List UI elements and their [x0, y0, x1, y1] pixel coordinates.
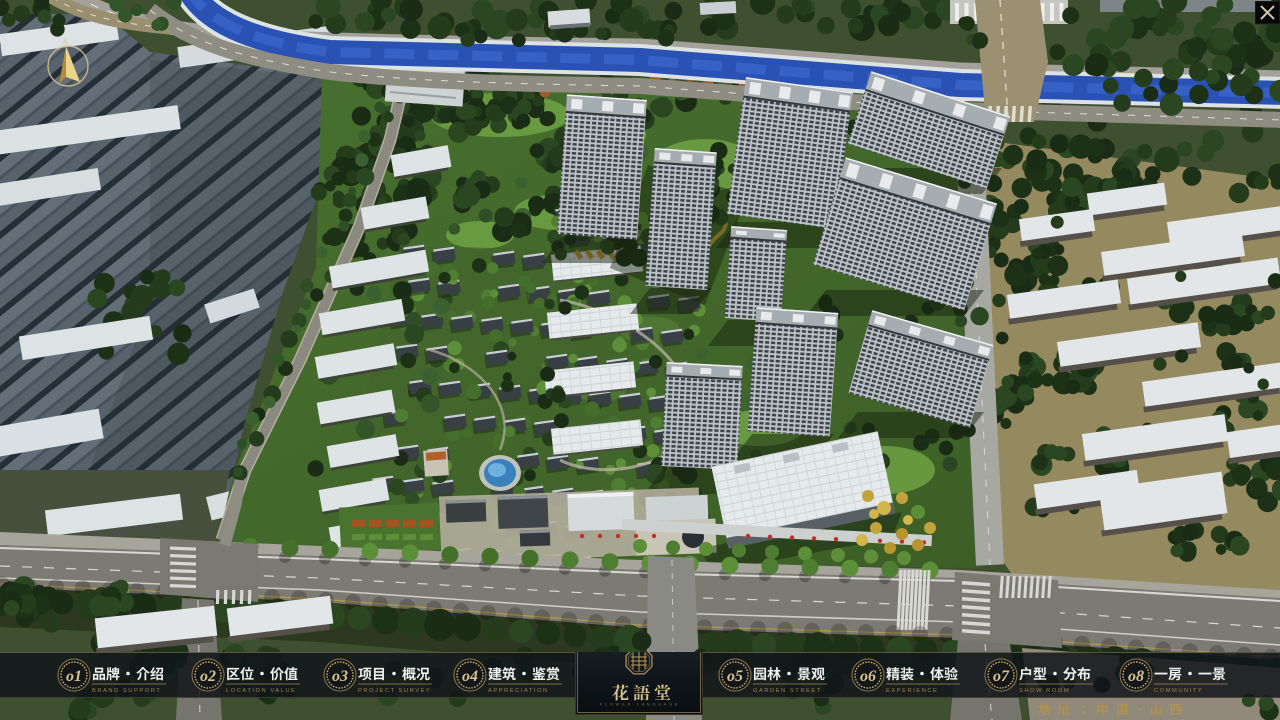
svg-text:LOCATION VALUE: LOCATION VALUE	[226, 688, 296, 694]
svg-text:o5: o5	[727, 668, 743, 685]
svg-text:GARDEN STREET: GARDEN STREET	[753, 688, 822, 694]
svg-text:o7: o7	[993, 668, 1010, 685]
svg-text:SHOW ROOM: SHOW ROOM	[1019, 688, 1070, 694]
svg-text:o2: o2	[200, 668, 216, 685]
svg-text:F L O W E R · L A N G U A G E: F L O W E R · L A N G U A G E	[600, 702, 678, 707]
svg-text:PROJECT SURVEY: PROJECT SURVEY	[358, 688, 431, 694]
svg-text:o8: o8	[1128, 668, 1144, 685]
svg-text:o4: o4	[462, 668, 478, 685]
svg-text:o1: o1	[66, 668, 82, 685]
svg-text:o3: o3	[332, 668, 348, 685]
svg-text:EXPERIENCE: EXPERIENCE	[886, 688, 938, 694]
svg-text:APPRECIATION: APPRECIATION	[488, 688, 549, 694]
svg-text:BRAND SUPPORT: BRAND SUPPORT	[92, 688, 161, 694]
svg-text:COMMUNITY: COMMUNITY	[1154, 688, 1203, 694]
svg-text:o6: o6	[860, 668, 876, 685]
